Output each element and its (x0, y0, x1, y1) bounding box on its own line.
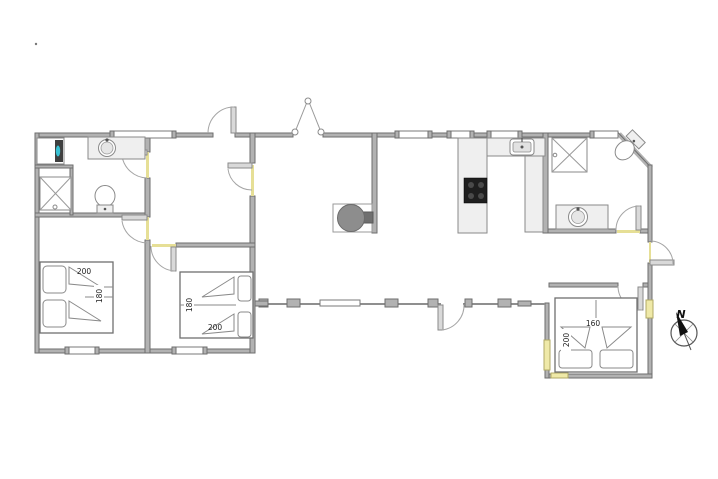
wall-bathroom2-south (548, 229, 616, 233)
cooktop-burner (468, 193, 474, 199)
shower-drain (53, 205, 57, 209)
window-west-bedroom3 (544, 340, 550, 370)
washbasin-tap (105, 138, 108, 141)
bed-width-label: 180 (95, 289, 104, 304)
cooktop-burner (478, 193, 484, 199)
living-door-leaf (228, 163, 252, 168)
window-north-kitchen (450, 131, 472, 138)
threshold-living (251, 165, 254, 196)
window-cap (590, 131, 594, 138)
facade-pier (498, 299, 511, 307)
wall-segment (235, 133, 293, 137)
bedroom1-door-arc (122, 221, 147, 243)
window-cap (428, 131, 432, 138)
bedroom2-door-leaf (171, 247, 176, 271)
window-east-bedroom3 (646, 300, 653, 318)
wall-segment (520, 133, 593, 137)
window-north-living (398, 131, 430, 138)
window-cap (172, 347, 176, 354)
toilet-flush-button (104, 208, 107, 211)
floor-plan-canvas: 200 180 180 200 160 200 N (0, 0, 718, 479)
washbasin-bowl (572, 211, 585, 224)
window-cap (447, 131, 451, 138)
floor-plan: 200 180 180 200 160 200 N (0, 0, 718, 479)
kitchen-fixtures (458, 138, 545, 233)
pipe-stub (518, 301, 531, 306)
terrace-door-arc (442, 304, 464, 330)
window-cap (470, 131, 474, 138)
wood-stove-icon (338, 205, 365, 232)
wall-shower-niche (35, 165, 73, 168)
wall-segment (175, 133, 213, 137)
cooktop-burner (468, 182, 474, 188)
bathroom2-door-leaf (636, 206, 641, 230)
washbasin-bowl (101, 142, 113, 154)
shower-valve (553, 153, 557, 157)
living-door-arc (228, 169, 252, 190)
entrance-door-arc (208, 107, 234, 133)
window-cap (95, 347, 99, 354)
wall-segment (250, 133, 255, 163)
bed-width-label: 180 (185, 298, 194, 313)
wall-hall-bathroom (145, 178, 150, 217)
wall-segment-east (648, 263, 652, 300)
print-artifact-dot (35, 43, 37, 45)
bed-length-label: 200 (562, 333, 571, 348)
bed-length-label: 200 (208, 323, 223, 332)
double-door-leaf (295, 102, 307, 132)
wall-segment-east (648, 165, 652, 242)
bed-bedroom3: 160 200 (555, 298, 637, 372)
double-door-pivot (305, 98, 311, 104)
bed-bedroom2: 180 200 (180, 272, 253, 338)
wall-bedroom-divider (145, 240, 150, 353)
facade-pier (287, 299, 300, 307)
bathroom1-fixtures (37, 137, 145, 213)
wall-hall-south (176, 243, 255, 247)
bed-bedroom1: 200 180 (40, 262, 113, 333)
wall-segment (36, 133, 113, 137)
window-north-sink (490, 131, 520, 138)
wall-bedroom3-north (549, 283, 618, 287)
kitchen-counter-right (525, 156, 543, 232)
bathroom2-fixtures (552, 130, 645, 229)
window-cap (487, 131, 491, 138)
facade-pier (465, 299, 472, 307)
wall-segment (323, 133, 398, 137)
washbasin-counter (88, 137, 145, 159)
wood-stove (333, 204, 373, 232)
bed-width-label: 160 (586, 319, 601, 328)
window-cap (518, 131, 522, 138)
double-door-hinge (318, 129, 324, 135)
bedroom1-door-leaf (122, 215, 147, 220)
washbasin-tap (576, 207, 579, 210)
compass-rose-icon: N (671, 308, 697, 350)
bedroom3-door-leaf (638, 287, 643, 310)
east-door-leaf (650, 260, 674, 265)
wall-bedroom3-north (643, 283, 648, 287)
double-door-hinge (292, 129, 298, 135)
window-cap (172, 131, 176, 138)
window-cap (203, 347, 207, 354)
cooktop-icon (464, 178, 487, 203)
terrace-door-leaf (438, 305, 443, 330)
facade-pier (385, 299, 398, 307)
compass-needle-south (684, 333, 691, 350)
washing-machine-glass (56, 146, 60, 157)
bed-length-label: 200 (77, 267, 92, 276)
kitchen-sink-drain (521, 146, 524, 149)
window-south-bedroom2 (175, 347, 204, 354)
cooktop-burner (478, 182, 484, 188)
window-cap (395, 131, 399, 138)
threshold-bathroom1 (146, 152, 149, 178)
toilet-icon (95, 186, 115, 207)
wall-segment-east (648, 318, 652, 378)
facade-pier (428, 299, 438, 307)
window-south-bedroom3 (551, 373, 568, 378)
pipe-stub (255, 301, 268, 306)
window-south-bedroom1 (68, 347, 96, 354)
double-door-leaf (309, 102, 321, 132)
window-south-living (320, 300, 360, 306)
compass-north-label: N (676, 308, 685, 321)
window-north-bathroom2 (593, 131, 618, 138)
window-cap (65, 347, 69, 354)
entrance-door-leaf (231, 107, 236, 133)
